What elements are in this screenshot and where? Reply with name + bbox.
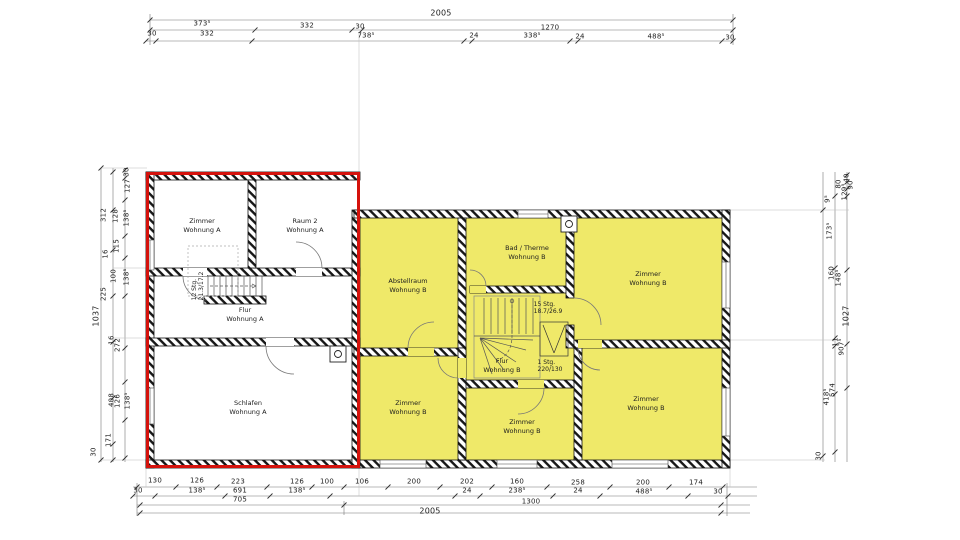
room-name: Schlafen <box>229 399 266 408</box>
dimension-label-top: 1270 <box>541 25 560 32</box>
dimension-label-right: 129⁵ <box>842 184 849 201</box>
dimension-label-left: 115 <box>114 239 121 253</box>
dimension-label-right: 418⁵ <box>824 389 831 406</box>
label-layer: 2005373⁵33230127030332738⁵24338⁵24488⁵30… <box>0 0 960 540</box>
dimension-label-top: 373⁵ <box>194 21 211 28</box>
stair-dimensions: 18.7/26.9 <box>534 308 563 315</box>
dimension-label-left: 126 <box>115 394 122 408</box>
dimension-label-right: 173⁵ <box>827 223 834 240</box>
dimension-label-bottom: 238⁵ <box>509 488 526 495</box>
room-unit: Wohnung B <box>388 286 427 295</box>
dimension-label-bottom: 130 <box>148 478 162 485</box>
dimension-label-bottom: 1300 <box>522 499 541 506</box>
room-unit: Wohnung A <box>183 226 220 235</box>
room-unit: Wohnung B <box>505 253 549 262</box>
room-name: Abstellraum <box>388 277 427 286</box>
dimension-label-bottom: 200 <box>636 480 650 487</box>
room-label: Bad / ThermeWohnung B <box>505 244 549 262</box>
room-name: Zimmer <box>629 270 666 279</box>
room-unit: Wohnung A <box>229 408 266 417</box>
stair-count: 15 Stg. <box>534 301 563 308</box>
dimension-label-top: 30 <box>147 31 156 38</box>
stair-count: 1 Stg. <box>538 359 563 366</box>
dimension-label-bottom: 30 <box>133 488 142 495</box>
stair-label: 15 Stg.18.7/26.9 <box>534 301 563 315</box>
dimension-label-left: 312 <box>101 208 108 222</box>
room-label: ZimmerWohnung B <box>503 418 540 436</box>
dimension-label-left: 138⁵ <box>124 210 131 227</box>
dimension-label-bottom: 2005 <box>419 508 440 515</box>
dimension-label-left: 225 <box>101 287 108 301</box>
room-label: ZimmerWohnung B <box>627 395 664 413</box>
dimension-label-bottom: 488⁵ <box>636 489 653 496</box>
dimension-label-left: 272 <box>115 338 122 352</box>
stair-count: 12 Stg. <box>191 272 198 301</box>
dimension-label-right: 148⁵ <box>836 270 843 287</box>
room-label: ZimmerWohnung B <box>389 399 426 417</box>
room-name: Flur <box>226 306 263 315</box>
dimension-label-right: 30 <box>816 451 823 460</box>
dimension-label-right: 9⁵ <box>825 195 832 203</box>
dimension-label-top: 488⁵ <box>648 34 665 41</box>
dimension-label-bottom: 100 <box>320 479 334 486</box>
stair-dimensions: 220/130 <box>538 366 563 373</box>
room-unit: Wohnung A <box>226 315 263 324</box>
room-unit: Wohnung B <box>503 427 540 436</box>
dimension-label-left: 100 <box>111 269 118 283</box>
dimension-label-top: 332 <box>300 23 314 30</box>
dimension-label-bottom: 258 <box>571 480 585 487</box>
dimension-label-left: 30 <box>91 447 98 456</box>
dimension-label-left: 127 <box>125 179 132 193</box>
dimension-label-top: 738⁵ <box>358 33 375 40</box>
dimension-label-bottom: 691 <box>233 488 247 495</box>
dimension-label-left: 171 <box>106 433 113 447</box>
room-unit: Wohnung B <box>389 408 426 417</box>
dimension-label-bottom: 705 <box>233 497 247 504</box>
room-label: ZimmerWohnung A <box>183 217 220 235</box>
room-label: Raum 2Wohnung A <box>286 217 323 235</box>
room-name: Zimmer <box>389 399 426 408</box>
dimension-label-bottom: 202 <box>460 479 474 486</box>
dimension-label-bottom: 126 <box>190 478 204 485</box>
room-name: Zimmer <box>183 217 220 226</box>
dimension-label-bottom: 174 <box>689 480 703 487</box>
room-label: ZimmerWohnung B <box>629 270 666 288</box>
room-name: Bad / Therme <box>505 244 549 253</box>
stair-dimensions: 21.3/17.2 <box>198 272 205 301</box>
dimension-label-right: 90 <box>848 180 855 189</box>
dimension-label-bottom: 106 <box>355 479 369 486</box>
dimension-label-bottom: 24 <box>462 488 471 495</box>
room-unit: Wohnung A <box>286 226 323 235</box>
stair-label: 12 Stg.21.3/17.2 <box>191 272 205 301</box>
dimension-label-bottom: 200 <box>407 479 421 486</box>
room-name: Flur <box>483 357 520 366</box>
room-name: Zimmer <box>627 395 664 404</box>
dimension-label-top: 338⁵ <box>524 33 541 40</box>
dimension-label-left: 128 <box>113 209 120 223</box>
dimension-label-bottom: 138⁵ <box>189 488 206 495</box>
dimension-label-bottom: 126 <box>290 479 304 486</box>
room-label: FlurWohnung B <box>483 357 520 375</box>
floorplan-page: 2005373⁵33230127030332738⁵24338⁵24488⁵30… <box>0 0 960 540</box>
room-name: Raum 2 <box>286 217 323 226</box>
dimension-label-bottom: 138⁵ <box>289 488 306 495</box>
dimension-label-left: 1037 <box>93 305 100 326</box>
room-label: SchlafenWohnung A <box>229 399 266 417</box>
dimension-label-top: 332 <box>200 31 214 38</box>
dimension-label-right: 574 <box>830 383 837 397</box>
room-label: FlurWohnung A <box>226 306 263 324</box>
dimension-label-bottom: 223 <box>231 479 245 486</box>
dimension-label-left: 138⁵ <box>124 269 131 286</box>
room-name: Zimmer <box>503 418 540 427</box>
dimension-label-bottom: 160 <box>510 479 524 486</box>
room-unit: Wohnung B <box>629 279 666 288</box>
dimension-label-top: 24 <box>575 34 584 41</box>
dimension-label-right: 1027 <box>843 305 850 326</box>
dimension-label-bottom: 24 <box>573 488 582 495</box>
dimension-label-left: 16 <box>103 249 110 258</box>
dimension-label-bottom: 30 <box>713 489 722 496</box>
dimension-label-left: 30 <box>124 167 131 176</box>
dimension-label-left: 138⁵ <box>125 393 132 410</box>
dimension-label-top: 2005 <box>430 10 451 17</box>
room-label: AbstellraumWohnung B <box>388 277 427 295</box>
stair-label: 1 Stg.220/130 <box>538 359 563 373</box>
room-unit: Wohnung B <box>483 366 520 375</box>
dimension-label-right: 907⁵ <box>839 339 846 356</box>
dimension-label-top: 30 <box>355 24 364 31</box>
dimension-label-top: 24 <box>469 33 478 40</box>
dimension-label-top: 30 <box>725 35 734 42</box>
room-unit: Wohnung B <box>627 404 664 413</box>
